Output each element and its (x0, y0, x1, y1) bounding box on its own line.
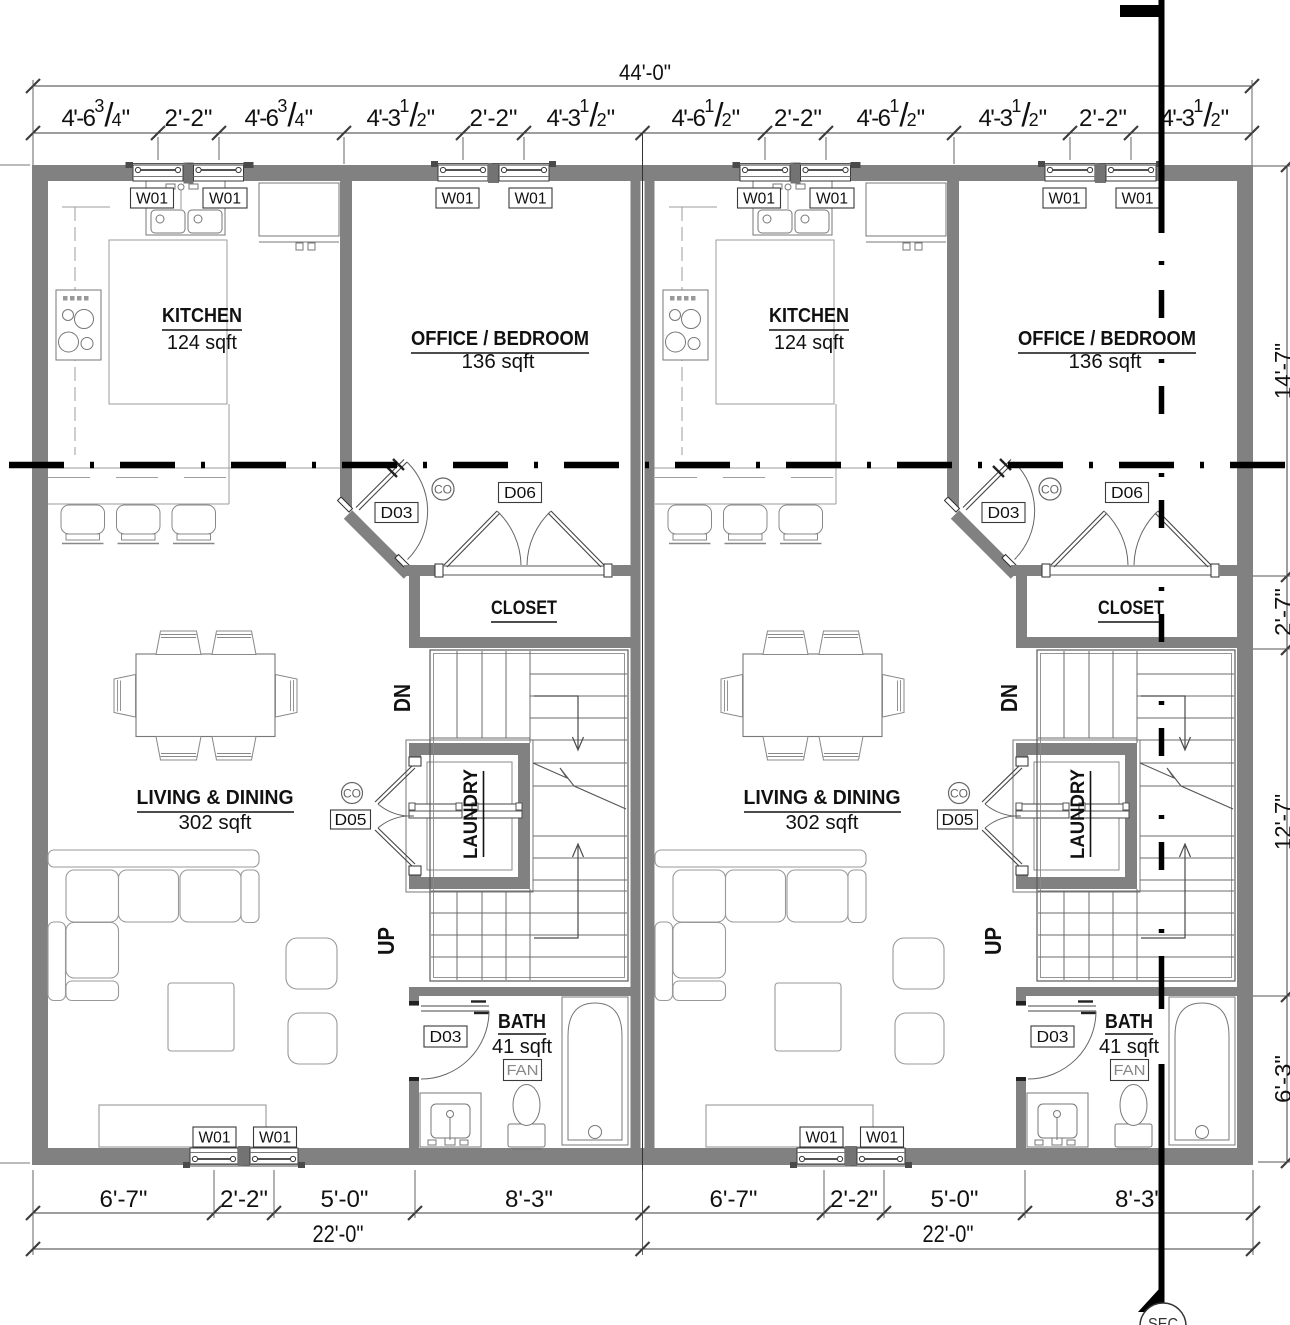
svg-text:124 sqft: 124 sqft (167, 332, 237, 354)
svg-text:5'-0": 5'-0" (321, 1186, 369, 1213)
svg-text:41 sqft: 41 sqft (1099, 1036, 1159, 1058)
svg-text:UP: UP (980, 927, 1006, 955)
svg-text:W01: W01 (515, 190, 547, 207)
svg-text:22'-0": 22'-0" (313, 1221, 364, 1248)
svg-text:BATH: BATH (1105, 1011, 1153, 1033)
svg-text:W01: W01 (866, 1129, 898, 1146)
svg-text:D06: D06 (1111, 485, 1143, 502)
svg-text:CO: CO (343, 787, 361, 801)
svg-text:CLOSET: CLOSET (1098, 598, 1164, 619)
svg-text:2'-2": 2'-2" (830, 1186, 878, 1213)
svg-text:W01: W01 (1049, 190, 1081, 207)
svg-text:302 sqft: 302 sqft (786, 812, 859, 834)
svg-text:41 sqft: 41 sqft (492, 1036, 552, 1058)
svg-text:W01: W01 (816, 190, 848, 207)
svg-text:302 sqft: 302 sqft (179, 812, 252, 834)
svg-text:D03: D03 (988, 505, 1020, 522)
svg-text:DN: DN (389, 684, 415, 712)
svg-text:2'-2": 2'-2" (220, 1186, 268, 1213)
svg-text:8'-3": 8'-3" (1115, 1186, 1163, 1213)
svg-text:CO: CO (950, 787, 968, 801)
svg-text:D05: D05 (335, 812, 367, 829)
svg-text:5'-0": 5'-0" (931, 1186, 979, 1213)
svg-text:44'-0": 44'-0" (619, 60, 671, 85)
svg-text:CLOSET: CLOSET (491, 598, 557, 619)
svg-text:22'-0": 22'-0" (923, 1221, 974, 1248)
svg-text:W01: W01 (199, 1129, 231, 1146)
svg-text:D05: D05 (942, 812, 974, 829)
svg-text:FAN: FAN (507, 1062, 539, 1079)
svg-text:6'-7": 6'-7" (100, 1186, 148, 1213)
svg-text:LIVING & DINING: LIVING & DINING (137, 787, 294, 809)
svg-text:124 sqft: 124 sqft (774, 332, 844, 354)
svg-text:D03: D03 (381, 505, 413, 522)
svg-text:UP: UP (373, 927, 399, 955)
svg-text:FAN: FAN (1114, 1062, 1146, 1079)
svg-text:W01: W01 (209, 190, 241, 207)
svg-text:LAUNDRY: LAUNDRY (1068, 769, 1089, 859)
svg-text:W01: W01 (1122, 190, 1154, 207)
svg-text:DN: DN (996, 684, 1022, 712)
svg-text:8'-3": 8'-3" (505, 1186, 553, 1213)
svg-text:LIVING & DINING: LIVING & DINING (744, 787, 901, 809)
svg-text:2'-2": 2'-2" (774, 105, 822, 132)
svg-text:W01: W01 (442, 190, 474, 207)
svg-text:OFFICE / BEDROOM: OFFICE / BEDROOM (1018, 328, 1196, 350)
svg-text:W01: W01 (743, 190, 775, 207)
svg-text:6'-3": 6'-3" (1270, 1055, 1290, 1103)
svg-text:12'-7": 12'-7" (1270, 794, 1290, 850)
svg-text:W01: W01 (136, 190, 168, 207)
svg-text:CO: CO (434, 483, 452, 497)
svg-text:BATH: BATH (498, 1011, 546, 1033)
svg-text:D03: D03 (430, 1029, 462, 1046)
svg-text:136 sqft: 136 sqft (462, 351, 535, 373)
svg-text:W01: W01 (259, 1129, 291, 1146)
svg-text:OFFICE / BEDROOM: OFFICE / BEDROOM (411, 328, 589, 350)
svg-text:SEC: SEC (1148, 1316, 1178, 1325)
svg-text:136 sqft: 136 sqft (1069, 351, 1142, 373)
svg-text:2'-7": 2'-7" (1270, 588, 1290, 636)
svg-text:LAUNDRY: LAUNDRY (461, 769, 482, 859)
svg-text:14'-7": 14'-7" (1270, 343, 1290, 399)
svg-text:W01: W01 (806, 1129, 838, 1146)
svg-text:D06: D06 (504, 485, 536, 502)
svg-text:KITCHEN: KITCHEN (162, 305, 242, 327)
svg-text:2'-2": 2'-2" (165, 105, 213, 132)
svg-text:D03: D03 (1037, 1029, 1069, 1046)
svg-text:KITCHEN: KITCHEN (769, 305, 849, 327)
svg-text:6'-7": 6'-7" (710, 1186, 758, 1213)
svg-text:CO: CO (1041, 483, 1059, 497)
svg-text:2'-2": 2'-2" (470, 105, 518, 132)
svg-text:2'-2": 2'-2" (1079, 105, 1127, 132)
